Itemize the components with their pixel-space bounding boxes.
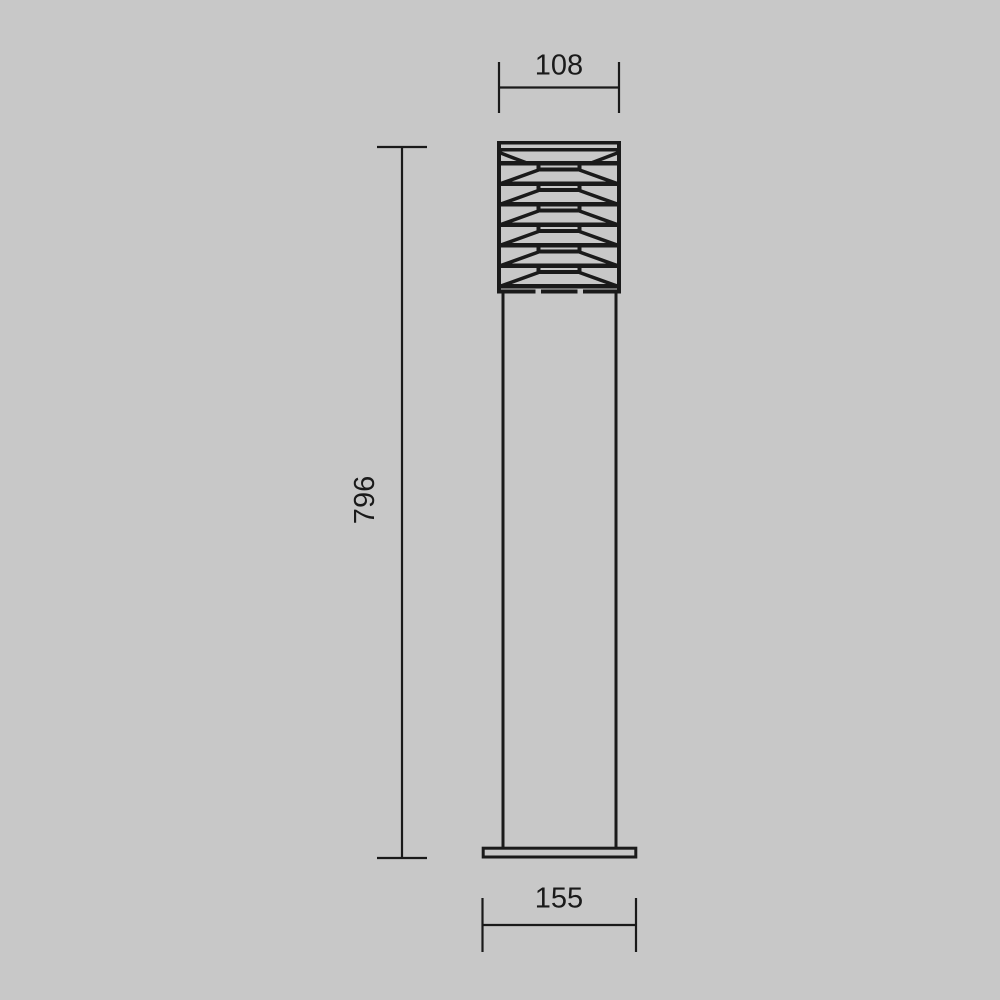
drawing-canvas: 108 796 155	[0, 0, 1000, 1000]
bollard-dimension-drawing: 108 796 155	[0, 0, 1000, 1000]
louver-bar	[497, 243, 621, 248]
louver-bar	[497, 223, 621, 228]
dim-overall-height-label: 796	[349, 476, 381, 524]
dim-head-width-label: 108	[535, 50, 583, 82]
head-cap-outer-line	[497, 141, 621, 145]
louver-bar	[497, 264, 621, 269]
dim-base-width-label: 155	[535, 883, 583, 915]
dim-overall-height	[377, 147, 427, 858]
lamp-head	[497, 141, 621, 294]
lamp-post	[503, 293, 616, 848]
louver-center-bars	[537, 165, 582, 275]
louver-bar	[497, 284, 621, 289]
louver-bar	[497, 202, 621, 207]
louver-bar	[497, 161, 621, 166]
head-cap-inner-line	[497, 148, 621, 152]
lamp-base	[483, 848, 636, 857]
louver-bar	[497, 182, 621, 187]
head-bottom-rim	[497, 290, 621, 294]
